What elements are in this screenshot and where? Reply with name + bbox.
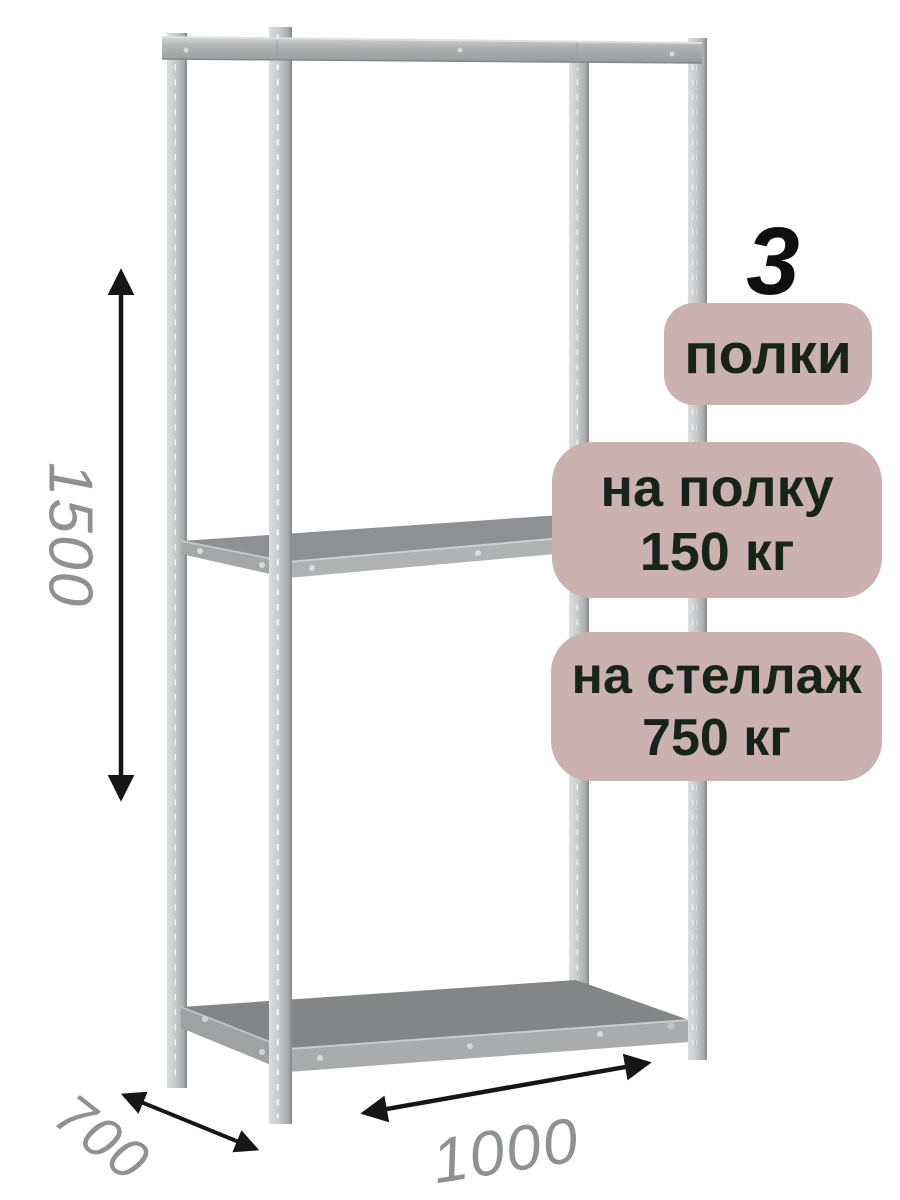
shelf-count-value: 3 bbox=[746, 207, 799, 317]
shelf-count-badge: полки bbox=[664, 303, 872, 405]
shelf-count-label: полки bbox=[684, 321, 852, 387]
load-per-shelf-label: на полку bbox=[600, 456, 833, 520]
rack-top-beam bbox=[162, 37, 702, 63]
shelving-rack-illustration bbox=[0, 0, 900, 1200]
load-per-rack-value: 750 кг bbox=[642, 707, 791, 769]
height-dimension-label: 1500 bbox=[35, 462, 106, 608]
rack-bottom-shelf bbox=[181, 980, 689, 1072]
load-per-shelf-badge: на полку 150 кг bbox=[552, 442, 882, 598]
load-per-shelf-value: 150 кг bbox=[640, 520, 795, 584]
width-dimension-arrow bbox=[364, 1063, 648, 1113]
product-image: 1500 700 1000 3 полки на полку 150 кг на… bbox=[0, 0, 900, 1200]
load-per-rack-label: на стеллаж bbox=[572, 645, 862, 707]
load-per-rack-badge: на стеллаж 750 кг bbox=[551, 632, 882, 781]
